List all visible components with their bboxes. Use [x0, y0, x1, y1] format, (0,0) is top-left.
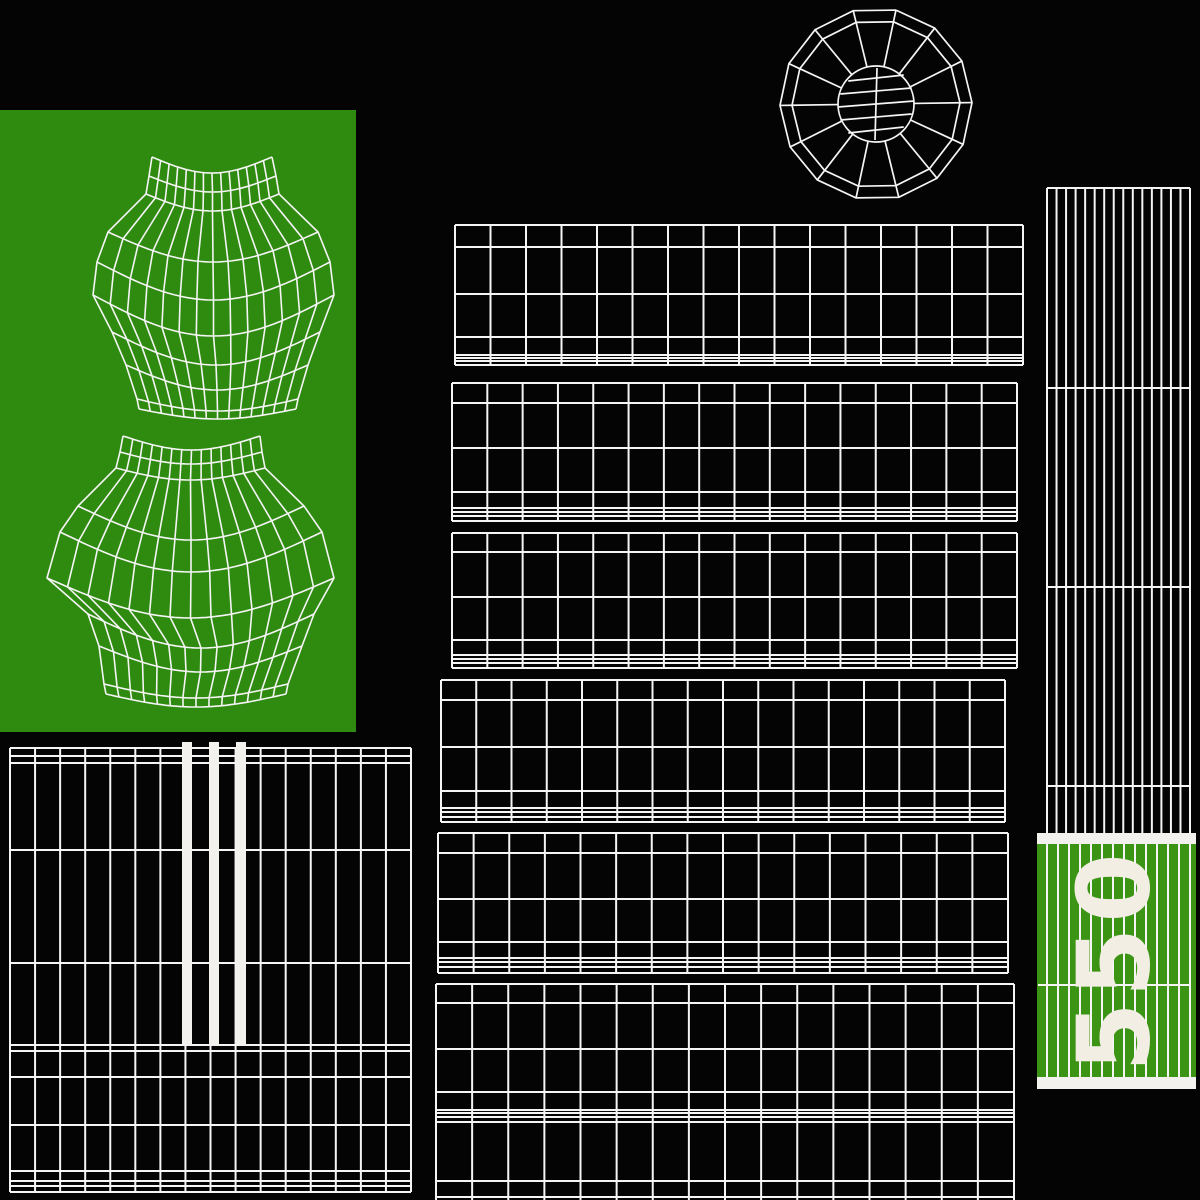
size-block-bottom-band	[1037, 1077, 1196, 1089]
grid-lower	[10, 1045, 411, 1192]
tread-strip-1	[455, 225, 1023, 365]
wheel-wireframe	[780, 10, 972, 198]
size-label-text: 550	[1056, 848, 1173, 1072]
tread-strip-4	[441, 680, 1005, 822]
size-label: 550	[1056, 848, 1173, 1072]
size-block-top-band	[1037, 833, 1196, 844]
tread-strip-5	[438, 833, 1008, 973]
tread-strip-3	[452, 533, 1017, 668]
tread-strip-6	[436, 984, 1014, 1122]
wireframe-canvas: 550	[0, 0, 1200, 1200]
green-panel	[0, 110, 356, 732]
tread-strip-2	[452, 383, 1017, 521]
white-bars	[182, 742, 246, 1045]
uv-texture-sheet: 550	[0, 0, 1200, 1200]
sidewall-strip	[1047, 188, 1190, 833]
tread-strip-7	[436, 1122, 1014, 1200]
